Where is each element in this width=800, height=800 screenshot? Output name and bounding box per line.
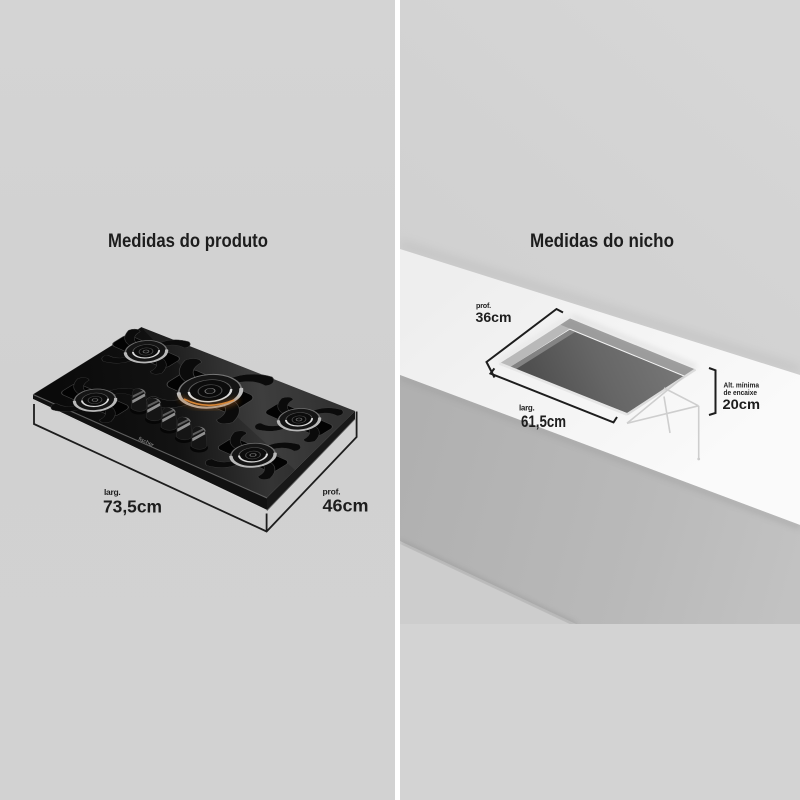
svg-text:larg.: larg. bbox=[519, 404, 534, 413]
svg-text:73,5cm: 73,5cm bbox=[103, 496, 162, 516]
svg-text:20cm: 20cm bbox=[723, 396, 761, 412]
svg-text:Medidas do nicho: Medidas do nicho bbox=[530, 230, 674, 252]
svg-text:36cm: 36cm bbox=[476, 310, 512, 325]
svg-text:Medidas do produto: Medidas do produto bbox=[108, 230, 268, 252]
svg-text:prof.: prof. bbox=[476, 301, 491, 310]
svg-text:61,5cm: 61,5cm bbox=[521, 413, 566, 431]
svg-text:46cm: 46cm bbox=[323, 496, 369, 516]
